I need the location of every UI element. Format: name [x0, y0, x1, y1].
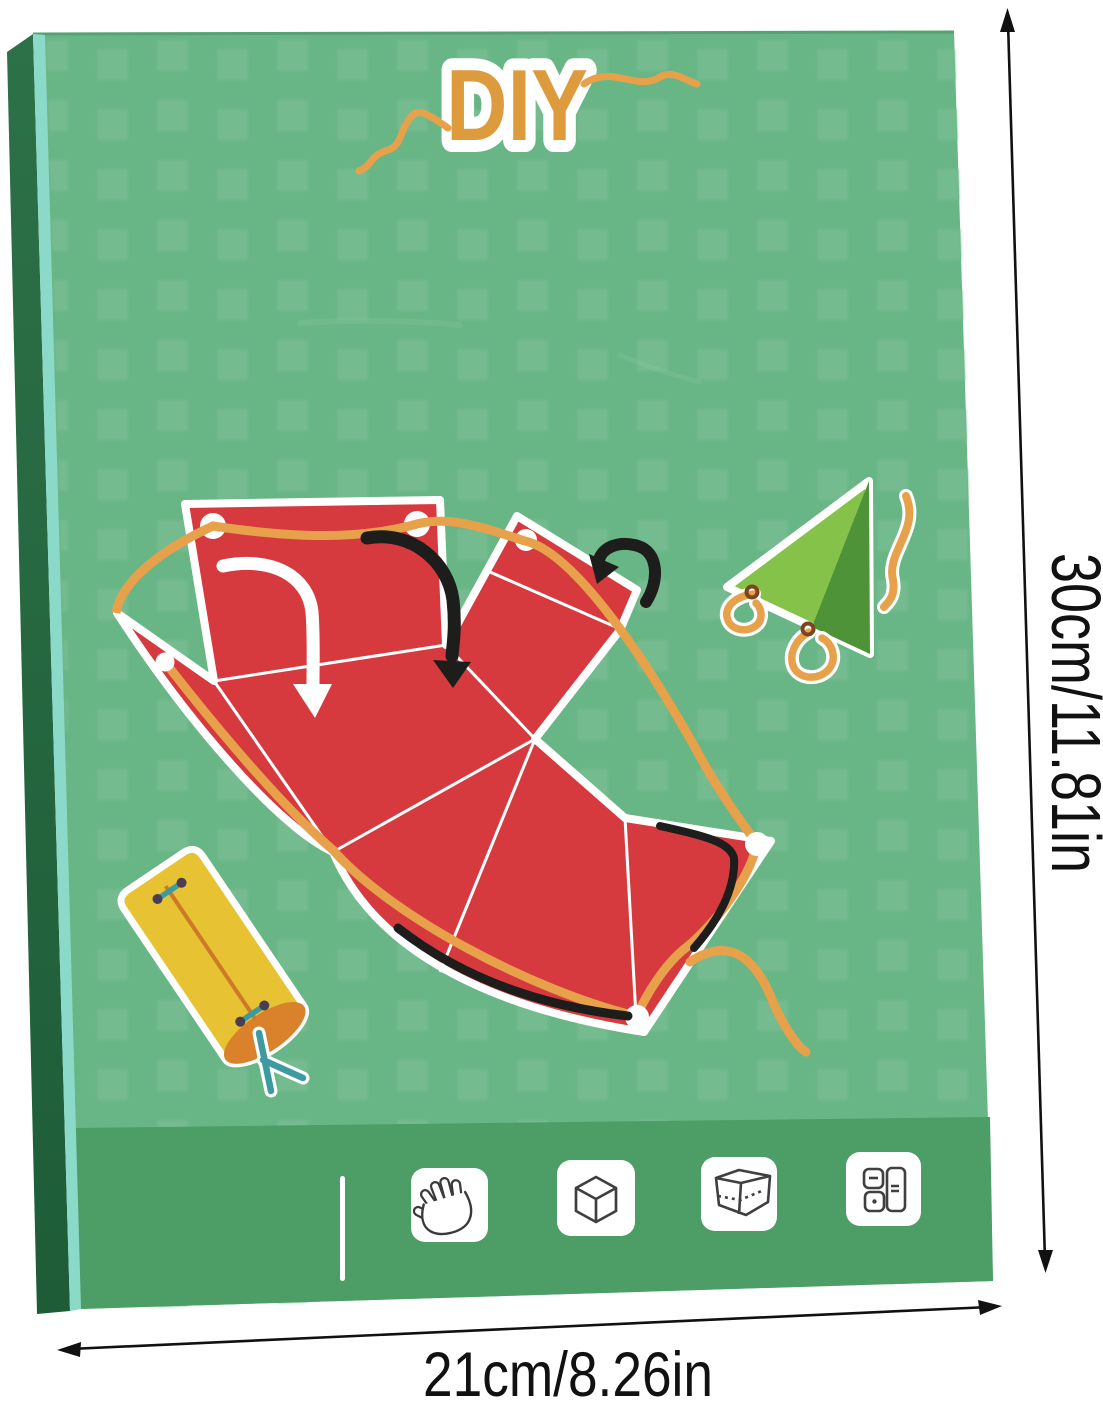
svg-text:30cm/11.81in: 30cm/11.81in	[1037, 553, 1103, 873]
svg-text:DIY: DIY	[446, 50, 588, 162]
svg-text:21cm/8.26in: 21cm/8.26in	[423, 1340, 713, 1402]
